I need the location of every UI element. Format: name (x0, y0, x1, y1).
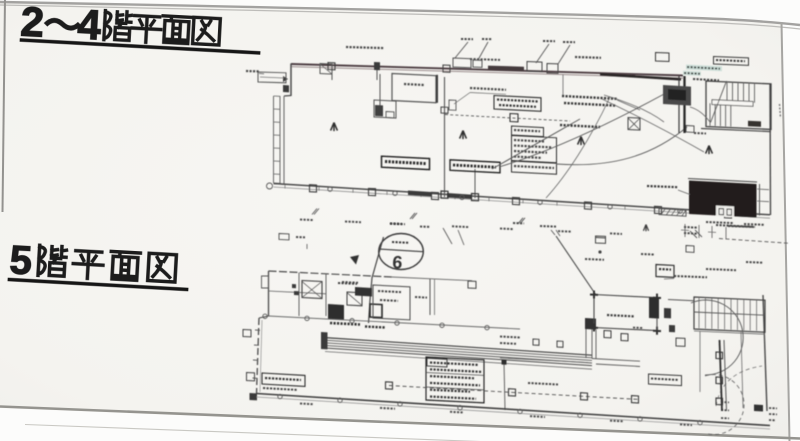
svg-text:5: 5 (8, 238, 33, 283)
svg-text:6: 6 (392, 252, 403, 273)
